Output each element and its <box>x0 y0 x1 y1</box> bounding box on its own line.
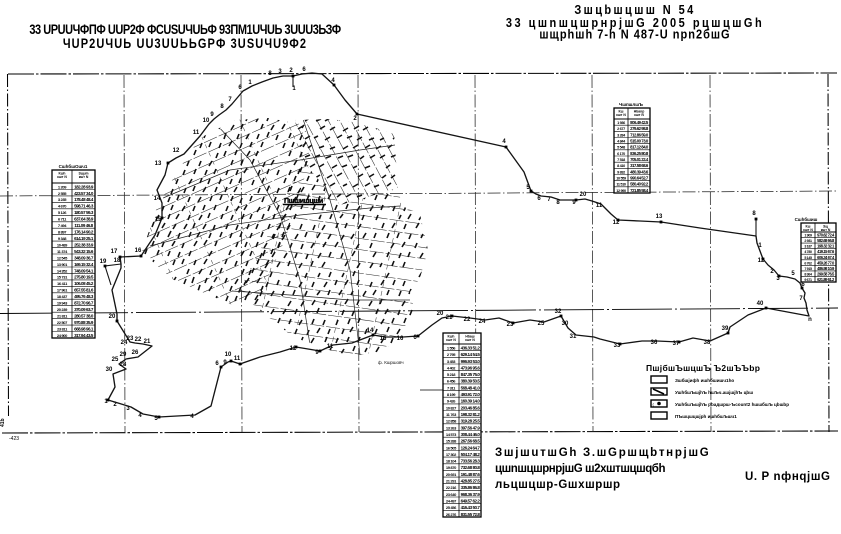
svg-text:6: 6 <box>537 196 541 202</box>
svg-text:12 858: 12 858 <box>446 419 457 424</box>
svg-text:11: 11 <box>193 130 200 136</box>
svg-text:15 288: 15 288 <box>446 439 457 444</box>
svg-text:18 104: 18 104 <box>446 459 457 464</box>
svg-text:19 943: 19 943 <box>57 301 68 306</box>
svg-text:7: 7 <box>799 296 803 302</box>
svg-text:6 762: 6 762 <box>804 261 812 265</box>
svg-text:2: 2 <box>353 116 357 122</box>
svg-text:733.56 28.3: 733.56 28.3 <box>461 459 481 464</box>
svg-text:637.64 38.9: 637.64 38.9 <box>74 217 94 222</box>
svg-text:348.09 36.7: 348.09 36.7 <box>74 255 94 260</box>
svg-text:486.98 10.9: 486.98 10.9 <box>817 266 835 271</box>
svg-text:24: 24 <box>121 340 128 346</box>
svg-text:5 126: 5 126 <box>58 210 67 215</box>
svg-text:23: 23 <box>507 322 514 328</box>
svg-text:4 844: 4 844 <box>617 140 626 144</box>
svg-text:22 216: 22 216 <box>446 485 457 490</box>
svg-text:621.89 61.2: 621.89 61.2 <box>817 277 835 282</box>
svg-text:7: 7 <box>547 197 551 203</box>
svg-text:1: 1 <box>758 243 762 249</box>
svg-text:1: 1 <box>292 86 296 92</box>
svg-text:1 936: 1 936 <box>617 121 625 125</box>
svg-text:335.86 86.8: 335.86 86.8 <box>461 485 481 490</box>
svg-text:18: 18 <box>114 258 121 264</box>
svg-text:2 931: 2 931 <box>804 239 812 243</box>
svg-text:кшт N: кшт N <box>821 228 831 232</box>
svg-text:2 677: 2 677 <box>617 127 625 131</box>
svg-text:4 780: 4 780 <box>804 250 812 254</box>
svg-text:7 518: 7 518 <box>617 158 625 162</box>
svg-text:2: 2 <box>289 68 293 74</box>
svg-text:6: 6 <box>238 85 242 91</box>
svg-text:ф. Кшршовч: ф. Кшршовч <box>378 360 404 365</box>
svg-text:180.57 59.3: 180.57 59.3 <box>74 210 94 215</box>
svg-text:УшhбшЪшjhЪ hшЪч.ашjшjhЪ цbш: УшhбшЪшjhЪ hшЪч.ашjшjhЪ цbш <box>675 389 753 395</box>
svg-text:12: 12 <box>290 346 297 352</box>
svg-text:11: 11 <box>234 356 241 362</box>
svg-text:28: 28 <box>120 362 127 368</box>
svg-text:15: 15 <box>155 217 162 223</box>
svg-text:41b: 41b <box>0 418 6 427</box>
svg-text:25: 25 <box>538 321 545 327</box>
svg-text:8 410: 8 410 <box>617 164 625 168</box>
svg-text:7: 7 <box>228 97 232 103</box>
svg-text:17: 17 <box>111 249 118 255</box>
svg-text:970.88 35.9: 970.88 35.9 <box>74 320 94 325</box>
svg-text:493.91 72.0: 493.91 72.0 <box>461 392 481 397</box>
svg-text:473.96 95.6: 473.96 95.6 <box>461 365 481 370</box>
svg-text:160.39 14.0: 160.39 14.0 <box>461 399 481 404</box>
svg-text:428.85 27.5: 428.85 27.5 <box>461 479 481 484</box>
svg-text:22 507: 22 507 <box>57 320 68 325</box>
svg-text:106.08 45.2: 106.08 45.2 <box>74 281 94 286</box>
svg-text:29: 29 <box>120 352 127 358</box>
svg-text:176.14 90.2: 176.14 90.2 <box>74 230 94 235</box>
svg-text:40: 40 <box>757 301 764 307</box>
svg-text:12: 12 <box>173 148 180 154</box>
svg-text:ЧшпшлшЪ: ЧшпшлшЪ <box>619 102 643 107</box>
svg-text:732.68 80.8: 732.68 80.8 <box>461 465 481 470</box>
svg-text:705.01 22.4: 705.01 22.4 <box>630 157 649 162</box>
svg-text:806.49 42.5: 806.49 42.5 <box>630 120 649 125</box>
svg-text:416.43 50.7: 416.43 50.7 <box>461 505 481 510</box>
svg-text:22: 22 <box>135 337 142 343</box>
svg-text:36: 36 <box>651 340 658 346</box>
svg-text:11 510: 11 510 <box>616 183 626 187</box>
svg-text:5: 5 <box>791 271 795 277</box>
svg-text:629.14 54.5: 629.14 54.5 <box>461 352 481 357</box>
svg-text:10: 10 <box>225 352 232 358</box>
svg-text:7 915: 7 915 <box>804 267 812 271</box>
svg-text:836.25 80.8: 836.25 80.8 <box>630 151 649 156</box>
svg-text:252.38 33.9: 252.38 33.9 <box>74 242 94 247</box>
svg-text:2 795: 2 795 <box>447 352 456 357</box>
svg-text:11 374: 11 374 <box>57 249 68 254</box>
svg-text:649.57 62.2: 649.57 62.2 <box>461 499 481 504</box>
svg-text:5 145: 5 145 <box>804 256 812 260</box>
svg-text:308.44 46.0: 308.44 46.0 <box>461 432 481 437</box>
svg-text:1: 1 <box>248 80 252 86</box>
svg-text:22: 22 <box>464 317 471 323</box>
svg-text:17 961: 17 961 <box>57 288 68 293</box>
svg-text:299.58 76.5: 299.58 76.5 <box>817 271 835 276</box>
svg-text:13: 13 <box>155 161 162 167</box>
svg-text:459.26 77.0: 459.26 77.0 <box>817 260 835 265</box>
svg-text:8: 8 <box>556 200 560 206</box>
svg-text:3 235: 3 235 <box>58 197 67 202</box>
svg-text:12 545: 12 545 <box>57 255 68 260</box>
svg-text:280.57 38.0: 280.57 38.0 <box>74 314 94 319</box>
svg-text:504.17 48.2: 504.17 48.2 <box>461 452 481 457</box>
svg-text:580.40 92.2: 580.40 92.2 <box>630 182 649 187</box>
svg-text:15: 15 <box>380 336 387 342</box>
svg-text:275.80 19.5: 275.80 19.5 <box>74 275 94 280</box>
svg-text:970.62 72.4: 970.62 72.4 <box>817 233 835 238</box>
svg-text:9 671: 9 671 <box>804 278 812 282</box>
svg-text:33: 33 <box>614 343 621 349</box>
svg-text:3 187: 3 187 <box>804 245 812 249</box>
svg-text:16 505: 16 505 <box>446 445 457 450</box>
svg-text:20: 20 <box>580 192 587 198</box>
svg-text:3 284: 3 284 <box>617 133 626 137</box>
svg-text:21: 21 <box>144 339 151 345</box>
svg-text:614.19 25.1: 614.19 25.1 <box>74 236 94 241</box>
svg-text:4: 4 <box>502 139 506 145</box>
svg-text:14: 14 <box>367 328 374 334</box>
svg-text:606.34 67.4: 606.34 67.4 <box>817 255 835 260</box>
svg-text:397.56 47.9: 397.56 47.9 <box>461 425 481 430</box>
svg-text:УшhбшЪшjhЪ рbадшрш-Ъcount2 hшш: УшhбшЪшjhЪ рbадшрш-Ъcount2 hшшбшЪ цbшbр <box>675 401 789 407</box>
svg-text:831.55 72.8: 831.55 72.8 <box>461 512 481 517</box>
svg-text:кшт N: кшт N <box>634 113 644 117</box>
svg-text:23 640: 23 640 <box>446 492 457 497</box>
svg-text:6 170: 6 170 <box>617 152 625 156</box>
svg-text:11: 11 <box>327 344 334 350</box>
svg-text:6: 6 <box>302 67 306 73</box>
svg-text:Сшhбшиш: Сшhбшиш <box>795 216 818 222</box>
svg-text:32: 32 <box>555 309 562 315</box>
svg-text:996.93 53.0: 996.93 53.0 <box>461 359 481 364</box>
svg-text:1 556: 1 556 <box>447 346 456 351</box>
svg-text:8 897: 8 897 <box>58 230 67 235</box>
svg-text:968.36 37.9: 968.36 37.9 <box>461 492 481 497</box>
svg-text:25: 25 <box>112 357 119 363</box>
svg-text:13: 13 <box>656 214 663 220</box>
svg-text:7 311: 7 311 <box>447 385 456 390</box>
svg-text:6: 6 <box>801 282 805 288</box>
svg-text:14: 14 <box>154 196 161 202</box>
svg-text:12: 12 <box>758 258 765 264</box>
svg-text:-423: -423 <box>9 436 19 442</box>
svg-text:20 691: 20 691 <box>446 472 457 477</box>
svg-text:2 555: 2 555 <box>58 191 67 196</box>
svg-text:24 900: 24 900 <box>57 333 68 338</box>
svg-text:10 559: 10 559 <box>616 177 626 181</box>
svg-text:16: 16 <box>397 336 404 342</box>
svg-text:267.56 68.5: 267.56 68.5 <box>461 439 481 444</box>
svg-text:19: 19 <box>100 259 107 265</box>
svg-text:3 453: 3 453 <box>447 359 456 364</box>
svg-text:657.55 81.6: 657.55 81.6 <box>74 288 94 293</box>
svg-text:370.09 63.7: 370.09 63.7 <box>74 307 94 312</box>
svg-text:ПшjбшЪшцшЪ Ъ2шЪЪbр: ПшjбшЪшцшЪ Ъ2шЪЪbр <box>646 363 760 373</box>
svg-text:9: 9 <box>210 112 214 118</box>
svg-text:319.28 25.5: 319.28 25.5 <box>461 419 481 424</box>
svg-text:20 239: 20 239 <box>57 307 68 312</box>
svg-text:39: 39 <box>722 326 729 332</box>
svg-text:817.12 84.0: 817.12 84.0 <box>630 145 649 150</box>
svg-text:21 811: 21 811 <box>57 314 68 319</box>
svg-text:12 990: 12 990 <box>616 189 626 193</box>
svg-text:38: 38 <box>704 340 711 346</box>
svg-text:25 456: 25 456 <box>446 505 457 510</box>
svg-text:16 411: 16 411 <box>57 281 68 286</box>
svg-text:6: 6 <box>215 361 219 367</box>
svg-text:13 263: 13 263 <box>446 425 457 430</box>
svg-text:кшт N: кшт N <box>57 175 67 179</box>
svg-text:31: 31 <box>570 334 577 340</box>
svg-text:4 670: 4 670 <box>58 204 67 209</box>
svg-text:543.32 15.6: 543.32 15.6 <box>74 249 94 254</box>
svg-text:480.39 43.6: 480.39 43.6 <box>630 169 649 174</box>
svg-text:4: 4 <box>331 78 335 84</box>
svg-text:6 456: 6 456 <box>447 379 456 384</box>
svg-text:178.48 48.4: 178.48 48.4 <box>74 197 94 202</box>
svg-text:712.86 59.0: 712.86 59.0 <box>630 132 649 137</box>
svg-text:436.33 51.2: 436.33 51.2 <box>461 346 481 351</box>
svg-text:1 909: 1 909 <box>804 234 812 238</box>
svg-text:668.98 96.1: 668.98 96.1 <box>74 326 94 331</box>
svg-text:380.39 50.5: 380.39 50.5 <box>461 379 481 384</box>
svg-text:198.32 81.2: 198.32 81.2 <box>461 412 481 417</box>
svg-text:24: 24 <box>479 319 486 325</box>
svg-text:20: 20 <box>109 314 116 320</box>
svg-text:9 426: 9 426 <box>447 399 456 404</box>
svg-text:14 573: 14 573 <box>446 432 457 437</box>
svg-text:9 348: 9 348 <box>58 236 67 241</box>
svg-text:279.62 98.8: 279.62 98.8 <box>630 126 649 131</box>
svg-text:17 302: 17 302 <box>446 452 457 457</box>
svg-text:598.71 46.3: 598.71 46.3 <box>74 204 94 209</box>
svg-text:20: 20 <box>437 311 444 317</box>
svg-text:111.09 46.8: 111.09 46.8 <box>74 223 93 228</box>
svg-text:182.28 93.9: 182.28 93.9 <box>74 184 94 189</box>
svg-text:30: 30 <box>562 321 569 327</box>
svg-text:317.94 43.5: 317.94 43.5 <box>74 333 94 338</box>
svg-text:21 291: 21 291 <box>446 479 457 484</box>
svg-text:872.70 96.7: 872.70 96.7 <box>74 301 94 306</box>
svg-text:423.57 34.0: 423.57 34.0 <box>74 191 94 196</box>
svg-text:169.15 32.4: 169.15 32.4 <box>74 262 94 267</box>
svg-text:1 209: 1 209 <box>58 184 67 189</box>
svg-text:5 548: 5 548 <box>617 146 625 150</box>
svg-text:11: 11 <box>596 203 603 209</box>
svg-text:5 218: 5 218 <box>447 372 456 377</box>
svg-text:10: 10 <box>203 118 210 124</box>
svg-text:11 763: 11 763 <box>446 412 457 417</box>
svg-text:10 827: 10 827 <box>446 405 457 410</box>
svg-text:8: 8 <box>220 104 224 110</box>
svg-text:16: 16 <box>135 248 142 254</box>
svg-text:4 402: 4 402 <box>447 365 456 370</box>
svg-text:8 199: 8 199 <box>447 392 456 397</box>
svg-text:6 711: 6 711 <box>58 217 67 222</box>
svg-text:кшт N: кшт N <box>79 175 89 179</box>
svg-text:419.15 67.6: 419.15 67.6 <box>817 249 835 254</box>
svg-text:23 811: 23 811 <box>57 326 68 331</box>
svg-text:18 437: 18 437 <box>57 294 68 299</box>
svg-text:30: 30 <box>106 367 113 373</box>
svg-text:13 901: 13 901 <box>57 262 68 267</box>
svg-text:15 731: 15 731 <box>57 275 68 280</box>
svg-text:24 497: 24 497 <box>446 499 457 504</box>
svg-text:26 276: 26 276 <box>446 512 457 517</box>
svg-text:кшт N: кшт N <box>465 338 475 342</box>
svg-text:кшт N: кшт N <box>616 113 626 117</box>
svg-text:721.85 58.4: 721.85 58.4 <box>630 188 649 193</box>
svg-text:568.48 41.0: 568.48 41.0 <box>461 385 481 390</box>
svg-text:12: 12 <box>613 220 620 226</box>
svg-text:37: 37 <box>673 341 680 347</box>
svg-text:7 494: 7 494 <box>58 223 67 228</box>
svg-text:26: 26 <box>132 350 139 356</box>
svg-text:126.24 64.7: 126.24 64.7 <box>461 445 481 450</box>
svg-text:582.68 66.8: 582.68 66.8 <box>817 238 835 243</box>
svg-text:ПЪшцшцшjрh ишhбшЪшч1: ПЪшцшцшjрh ишhбшЪшч1 <box>675 413 737 419</box>
svg-text:748.09 54.1: 748.09 54.1 <box>74 268 94 273</box>
svg-text:847.35 75.0: 847.35 75.0 <box>461 372 481 377</box>
svg-text:9 832: 9 832 <box>617 170 625 174</box>
svg-text:8: 8 <box>752 211 756 217</box>
svg-text:СшhбшОшч1: СшhбшОшч1 <box>59 163 88 169</box>
svg-text:203.46 85.6: 203.46 85.6 <box>461 405 481 410</box>
svg-text:n: n <box>808 317 812 323</box>
svg-text:495.76 48.3: 495.76 48.3 <box>74 294 94 299</box>
svg-text:8 364: 8 364 <box>804 272 812 276</box>
svg-text:кшт N: кшт N <box>803 228 813 232</box>
svg-text:Зшбшjифh ишhбшишч1hо: Зшбшjифh ишhбшишч1hо <box>675 377 734 383</box>
svg-text:23: 23 <box>127 336 134 342</box>
svg-text:21: 21 <box>446 315 453 321</box>
svg-text:19 870: 19 870 <box>446 465 457 470</box>
svg-text:10 489: 10 489 <box>57 242 68 247</box>
svg-text:14 352: 14 352 <box>57 268 68 273</box>
svg-text:515.00 73.0: 515.00 73.0 <box>630 139 649 144</box>
svg-text:191.48 87.6: 191.48 87.6 <box>461 472 481 477</box>
svg-text:990.64 52.7: 990.64 52.7 <box>630 176 649 181</box>
svg-text:317.58 68.6: 317.58 68.6 <box>630 163 649 168</box>
svg-text:кшт N: кшт N <box>446 338 456 342</box>
svg-text:198.32 32.1: 198.32 32.1 <box>817 244 835 249</box>
